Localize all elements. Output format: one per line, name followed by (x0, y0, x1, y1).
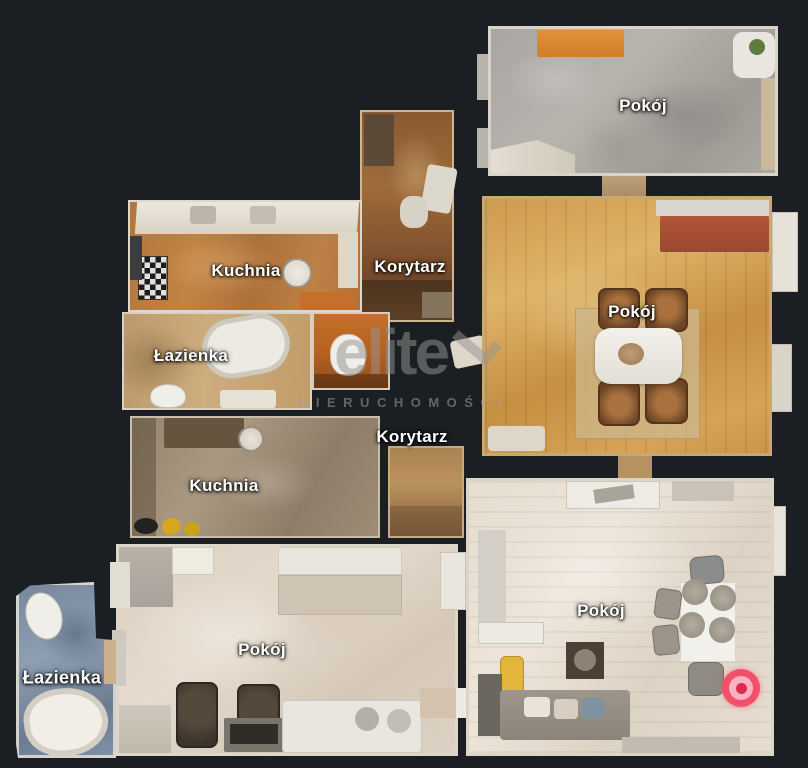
stove (250, 206, 276, 224)
room-korytarz-top[interactable] (360, 110, 454, 322)
wall-fragment (622, 737, 740, 753)
floorplan-canvas: Pokój Korytarz Kuchnia Łazienka Pokój Ko… (0, 0, 808, 768)
chair-seat (709, 617, 735, 643)
toilet (150, 384, 186, 408)
chair-seat (682, 579, 708, 605)
chair (652, 624, 681, 657)
wall-fragment (110, 562, 130, 608)
cushion (582, 698, 604, 718)
shelf (478, 622, 544, 644)
room-korytarz-middle[interactable] (388, 446, 464, 538)
bed (537, 30, 624, 57)
rug (364, 114, 394, 166)
sink (238, 426, 264, 452)
camera-marker-dot (736, 683, 747, 694)
pet-bed (134, 518, 158, 534)
watermark-brand: elite (334, 320, 447, 384)
yellow-stool (160, 516, 182, 536)
room-label: Łazienka (154, 346, 228, 366)
room-label: Korytarz (374, 257, 445, 277)
room-label: Korytarz (376, 427, 447, 447)
room-label: Kuchnia (189, 476, 258, 496)
sink-cabinet (220, 390, 276, 408)
chair (645, 378, 688, 424)
floor-shadow (390, 506, 462, 536)
wardrobe (770, 344, 792, 412)
wardrobe (761, 78, 775, 170)
cabinet (672, 481, 734, 501)
bowl (574, 649, 596, 671)
sofa (278, 575, 402, 615)
room-label: Pokój (577, 601, 625, 621)
door (104, 640, 116, 684)
chair (598, 380, 640, 426)
wardrobe (772, 212, 798, 292)
floor-patch (300, 292, 355, 310)
bedding (491, 140, 575, 173)
plant (749, 39, 765, 55)
rug (164, 418, 244, 448)
cushion (355, 707, 379, 731)
fixture (400, 196, 428, 228)
centerpiece (618, 343, 644, 365)
checkered-mat (138, 256, 168, 300)
camera-viewpoint-marker[interactable] (722, 669, 760, 707)
bench (488, 426, 545, 451)
sofa-pillows (278, 547, 402, 575)
chair-seat (710, 585, 736, 611)
kitchen-counter (135, 202, 359, 234)
watermark-subtitle: NIERUCHOMOŚCI (299, 395, 508, 410)
cushion (387, 709, 411, 733)
room-pokoj-bottom-left[interactable] (116, 544, 458, 756)
cabinet (338, 232, 358, 288)
tv-screen (230, 724, 278, 744)
doorway-stub (618, 452, 652, 480)
room-label: Łazienka (23, 668, 101, 689)
armchair (176, 682, 218, 748)
chair-seat (679, 612, 705, 638)
room-label: Kuchnia (211, 261, 280, 281)
bathtub (20, 682, 113, 761)
room-label: Pokój (619, 96, 667, 116)
floor-patch (119, 705, 171, 753)
room-kuchnia-top[interactable] (128, 200, 362, 312)
toilet (19, 588, 68, 645)
appliance (130, 236, 142, 280)
wall-column (478, 530, 506, 622)
wardrobe (172, 547, 214, 575)
room-pokoj-middle-right[interactable] (482, 196, 772, 456)
kitchen-counter (478, 674, 502, 736)
cushion (554, 699, 578, 719)
room-label: Pokój (238, 640, 286, 660)
bed (660, 216, 769, 252)
wall-fragment (440, 552, 466, 610)
chair (688, 662, 724, 696)
cushion (524, 697, 550, 717)
pillows (656, 200, 769, 216)
yellow-stool (184, 522, 200, 536)
sink-basin (190, 206, 216, 224)
chair (653, 587, 683, 620)
round-table (282, 258, 312, 288)
room-label: Pokój (608, 302, 656, 322)
